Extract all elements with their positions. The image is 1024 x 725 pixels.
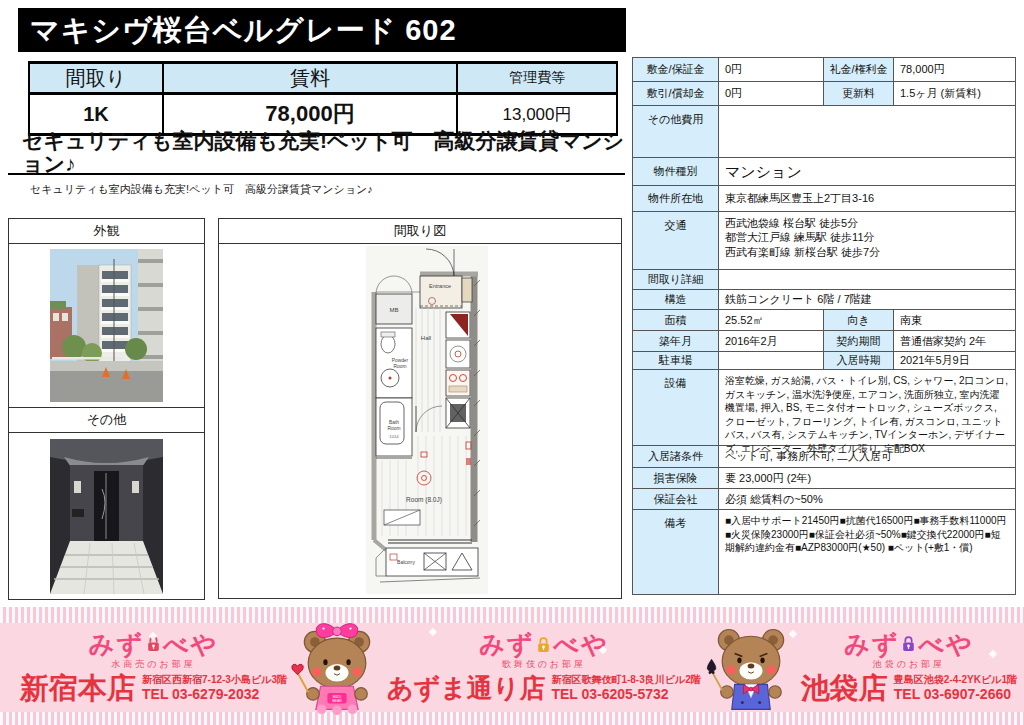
floorplan-label: 間取り図 bbox=[219, 219, 621, 244]
floorplan-mb-label: MB bbox=[390, 307, 399, 313]
detail-label: 向き bbox=[824, 310, 894, 330]
detail-value: 要 23,000円 (2年) bbox=[719, 468, 1015, 488]
store-address: 新宿区歌舞伎町1-8-3良川ビル2階 bbox=[551, 674, 700, 686]
detail-value: 西武池袋線 桜台駅 徒歩5分 都営大江戸線 練馬駅 徒歩11分 西武有楽町線 新… bbox=[719, 212, 1015, 269]
detail-label: 入居諸条件 bbox=[633, 446, 719, 467]
property-flyer-page: マキシヴ桜台ベルグレード 602 間取り 賃料 管理費等 1K 78,000円 … bbox=[0, 0, 1024, 725]
table-row: 築年月 2016年2月 契約期間 普通借家契約 2年 bbox=[633, 331, 1015, 352]
detail-label: 入居時期 bbox=[824, 352, 894, 369]
summary-value-row: 1K 78,000円 13,000円 bbox=[30, 95, 616, 133]
floorplan-drawing: Entrance MB Hall bbox=[320, 246, 520, 594]
store-phone: TEL 03-6205-5732 bbox=[551, 686, 700, 702]
table-row: 交通 西武池袋線 桜台駅 徒歩5分 都営大江戸線 練馬駅 徒歩11分 西武有楽町… bbox=[633, 212, 1015, 270]
store-address: 豊島区池袋2-4-2YKビル1階 bbox=[894, 674, 1017, 686]
catch-copy-small: セキュリティも室内設備も充実!ペット可 高級分譲賃貸マンション♪ bbox=[30, 182, 620, 197]
detail-label: 物件所在地 bbox=[633, 186, 719, 211]
detail-value bbox=[719, 352, 824, 369]
table-row: その他費用 bbox=[633, 106, 1015, 158]
rent-summary-table: 間取り 賃料 管理費等 1K 78,000円 13,000円 bbox=[28, 61, 618, 136]
store-block-ikebukuro: みず べや 池袋のお部屋 池袋店 豊島区池袋2-4-2YKビル1階 TEL 03… bbox=[801, 632, 1017, 703]
detail-label: 物件種別 bbox=[633, 158, 719, 185]
table-row: 入居諸条件 ペット可, 事務所不可, 二人入居可 bbox=[633, 446, 1015, 468]
brand-text-left: みず bbox=[479, 632, 534, 657]
detail-value: ■入居中サポート21450円■抗菌代16500円■事務手数料11000円■火災保… bbox=[719, 510, 1015, 594]
detail-label: 敷引/償却金 bbox=[633, 82, 719, 105]
table-row: 損害保険 要 23,000円 (2年) bbox=[633, 468, 1015, 489]
table-row: 備考 ■入居中サポート21450円■抗菌代16500円■事務手数料11000円■… bbox=[633, 510, 1015, 594]
table-row: 保証会社 必須 総賃料の~50% bbox=[633, 489, 1015, 510]
detail-value: 浴室乾燥, ガス給湯, バス・トイレ別, CS, シャワー, 2口コンロ, ガス… bbox=[719, 370, 1015, 445]
floorplan-balcony-label: Balcony bbox=[397, 559, 415, 565]
floorplan-entrance-label: Entrance bbox=[429, 283, 451, 289]
detail-value: 普通借家契約 2年 bbox=[894, 331, 1015, 351]
detail-value: 0円 bbox=[719, 58, 824, 81]
detail-label: 更新料 bbox=[824, 82, 894, 105]
detail-label: 間取り詳細 bbox=[633, 270, 719, 289]
brand-text-left: みず bbox=[844, 632, 899, 657]
brand-logo: みず べや bbox=[479, 632, 608, 657]
svg-text:Room: Room bbox=[388, 426, 401, 431]
detail-value: マンション bbox=[719, 158, 1015, 185]
detail-value: 1.5ヶ月 (新賃料) bbox=[894, 82, 1015, 105]
floorplan-hall-label: Hall bbox=[421, 335, 431, 341]
svg-text:Room: Room bbox=[394, 364, 407, 369]
photo-column: 外観 bbox=[8, 218, 205, 600]
detail-label: 敷金/保証金 bbox=[633, 58, 719, 81]
detail-value: 南東 bbox=[894, 310, 1015, 330]
brand-text-right: べや bbox=[163, 632, 218, 657]
table-row: 物件種別 マンション bbox=[633, 158, 1015, 186]
exterior-photo bbox=[9, 244, 204, 408]
lock-icon bbox=[901, 635, 916, 653]
divider-line bbox=[8, 173, 625, 175]
bear-girl-mascot-icon: MIZU BEAR bbox=[287, 617, 387, 717]
table-row: 間取り詳細 bbox=[633, 270, 1015, 290]
exterior-photo-image bbox=[50, 249, 163, 402]
brand-text-right: べや bbox=[918, 632, 973, 657]
svg-text:1014: 1014 bbox=[389, 434, 399, 439]
store-name-row: 池袋店 豊島区池袋2-4-2YKビル1階 TEL 03-6907-2660 bbox=[801, 674, 1017, 703]
summary-value-layout: 1K bbox=[30, 95, 164, 133]
detail-value: 2021年5月9日 bbox=[894, 352, 1015, 369]
property-title: マキシヴ桜台ベルグレード 602 bbox=[30, 14, 457, 46]
detail-label: 面積 bbox=[633, 310, 719, 330]
exterior-photo-label: 外観 bbox=[9, 219, 204, 244]
detail-value: 2016年2月 bbox=[719, 331, 824, 351]
table-row: 設備 浴室乾燥, ガス給湯, バス・トイレ別, CS, シャワー, 2口コンロ,… bbox=[633, 370, 1015, 446]
floorplan-room-label: Room (8.0J) bbox=[406, 496, 442, 504]
store-tagline: 水商売のお部屋 bbox=[111, 658, 195, 671]
store-tagline: 池袋のお部屋 bbox=[873, 658, 945, 671]
entrance-photo-image bbox=[50, 439, 163, 594]
detail-label: 保証会社 bbox=[633, 489, 719, 509]
detail-label: 礼金/権利金 bbox=[824, 58, 894, 81]
summary-header-row: 間取り 賃料 管理費等 bbox=[30, 64, 616, 95]
store-block-shinjuku: みず べや 水商売のお部屋 新宿本店 新宿区西新宿7-12-3小島ビル3階 TE… bbox=[20, 632, 287, 703]
detail-value: 0円 bbox=[719, 82, 824, 105]
summary-header-fee: 管理費等 bbox=[458, 64, 616, 92]
catch-copy-large: セキュリティも室内設備も充実!ペット可 高級分譲賃貸マンション♪ bbox=[22, 129, 624, 175]
detail-value: ペット可, 事務所不可, 二人入居可 bbox=[719, 446, 1015, 467]
detail-label: 築年月 bbox=[633, 331, 719, 351]
store-name-row: 新宿本店 新宿区西新宿7-12-3小島ビル3階 TEL 03-6279-2032 bbox=[20, 674, 287, 703]
property-details-table: 敷金/保証金 0円 礼金/権利金 78,000円 敷引/償却金 0円 更新料 1… bbox=[632, 57, 1016, 595]
other-photo bbox=[9, 433, 204, 599]
floorplan-box: 間取り図 bbox=[218, 218, 622, 599]
summary-header-layout: 間取り bbox=[30, 64, 164, 92]
detail-value bbox=[719, 106, 1015, 157]
table-row: 面積 25.52㎡ 向き 南東 bbox=[633, 310, 1015, 331]
detail-label: 交通 bbox=[633, 212, 719, 269]
detail-label: 構造 bbox=[633, 290, 719, 309]
detail-label: 設備 bbox=[633, 370, 719, 445]
store-name: 新宿本店 bbox=[20, 674, 136, 703]
store-phone: TEL 03-6907-2660 bbox=[894, 686, 1017, 702]
detail-value: 必須 総賃料の~50% bbox=[719, 489, 1015, 509]
table-row: 敷引/償却金 0円 更新料 1.5ヶ月 (新賃料) bbox=[633, 82, 1015, 106]
detail-label: 損害保険 bbox=[633, 468, 719, 488]
brand-text-left: みず bbox=[89, 632, 144, 657]
store-block-azuma: みず べや 歌舞伎のお部屋 あずま通り店 新宿区歌舞伎町1-8-3良川ビル2階 … bbox=[387, 632, 701, 702]
table-row: 敷金/保証金 0円 礼金/権利金 78,000円 bbox=[633, 58, 1015, 82]
detail-label: 備考 bbox=[633, 510, 719, 594]
summary-value-fee: 13,000円 bbox=[458, 95, 616, 133]
detail-label: 駐車場 bbox=[633, 352, 719, 369]
store-name: 池袋店 bbox=[801, 674, 888, 703]
store-address: 新宿区西新宿7-12-3小島ビル3階 bbox=[142, 674, 287, 686]
table-row: 構造 鉄筋コンクリート 6階 / 7階建 bbox=[633, 290, 1015, 310]
other-photo-label: その他 bbox=[9, 408, 204, 433]
store-name-row: あずま通り店 新宿区歌舞伎町1-8-3良川ビル2階 TEL 03-6205-57… bbox=[387, 674, 701, 702]
store-tagline: 歌舞伎のお部屋 bbox=[502, 658, 586, 671]
brand-text-right: べや bbox=[553, 632, 608, 657]
table-row: 物件所在地 東京都練馬区豊玉上2丁目3-16 bbox=[633, 186, 1015, 212]
store-phone: TEL 03-6279-2032 bbox=[142, 686, 287, 702]
detail-value: 東京都練馬区豊玉上2丁目3-16 bbox=[719, 186, 1015, 211]
summary-header-rent: 賃料 bbox=[164, 64, 458, 92]
store-name: あずま通り店 bbox=[387, 675, 545, 701]
floorplan-bath-label: Bath bbox=[389, 420, 399, 425]
property-title-bar: マキシヴ桜台ベルグレード 602 bbox=[18, 8, 626, 52]
table-row: 駐車場 入居時期 2021年5月9日 bbox=[633, 352, 1015, 370]
floorplan-drawing-area: Entrance MB Hall bbox=[219, 244, 621, 596]
bear-boy-mascot-icon bbox=[701, 617, 801, 717]
summary-value-rent: 78,000円 bbox=[164, 95, 458, 133]
store-footer-banner: みず べや 水商売のお部屋 新宿本店 新宿区西新宿7-12-3小島ビル3階 TE… bbox=[0, 607, 1024, 725]
detail-label: 契約期間 bbox=[824, 331, 894, 351]
detail-value bbox=[719, 270, 1015, 289]
detail-value: 25.52㎡ bbox=[719, 310, 824, 330]
brand-logo: みず べや bbox=[844, 632, 973, 657]
detail-label: その他費用 bbox=[633, 106, 719, 157]
lock-icon bbox=[536, 636, 551, 654]
detail-value: 鉄筋コンクリート 6階 / 7階建 bbox=[719, 290, 1015, 309]
svg-text:BEAR: BEAR bbox=[332, 699, 342, 703]
floorplan-powder-label: Powder bbox=[392, 358, 409, 363]
detail-value: 78,000円 bbox=[894, 58, 1015, 81]
